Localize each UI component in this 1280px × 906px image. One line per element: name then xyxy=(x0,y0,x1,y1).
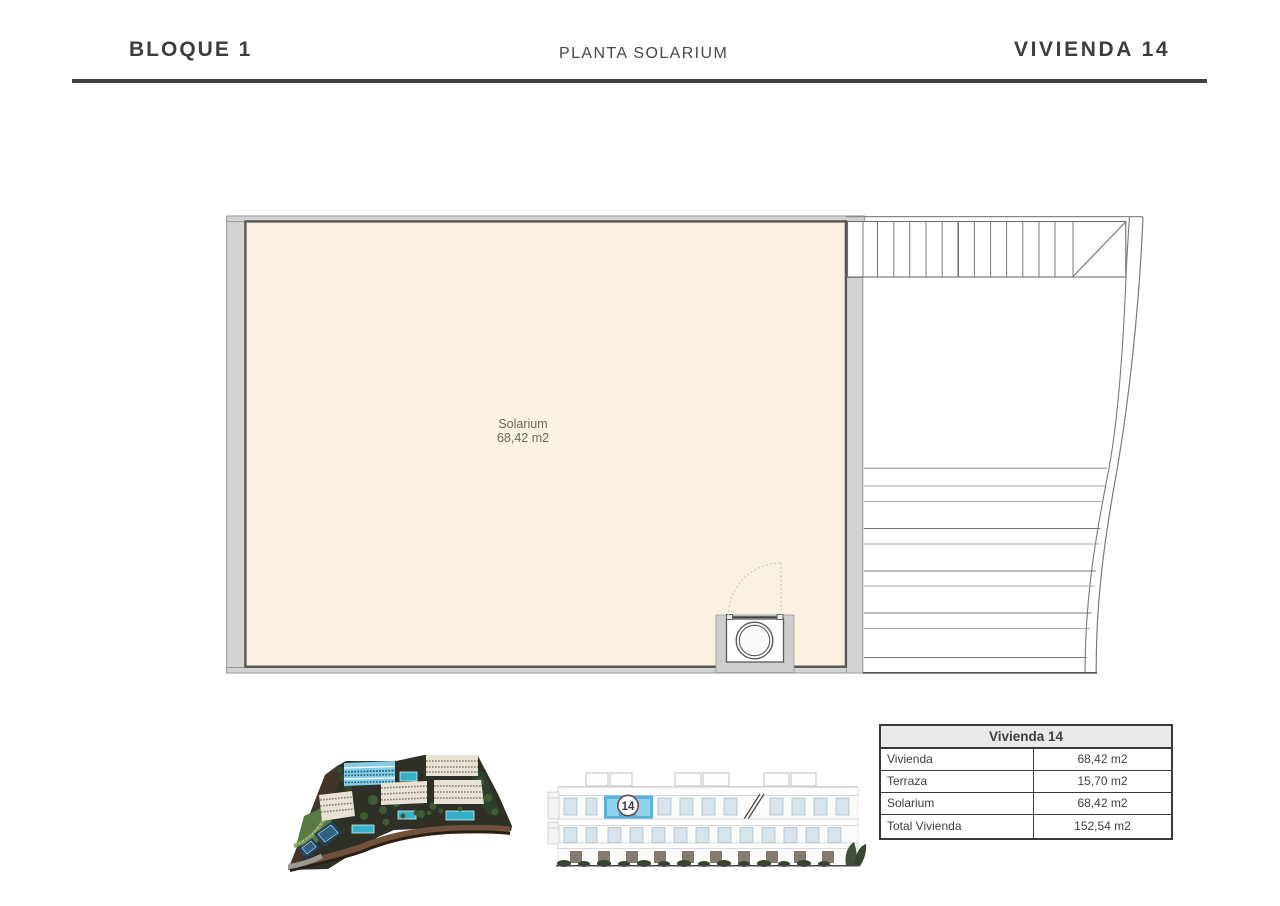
svg-text:68,42 m2: 68,42 m2 xyxy=(497,431,549,445)
svg-text:Solarium: Solarium xyxy=(498,417,547,431)
svg-text:14: 14 xyxy=(622,801,635,813)
